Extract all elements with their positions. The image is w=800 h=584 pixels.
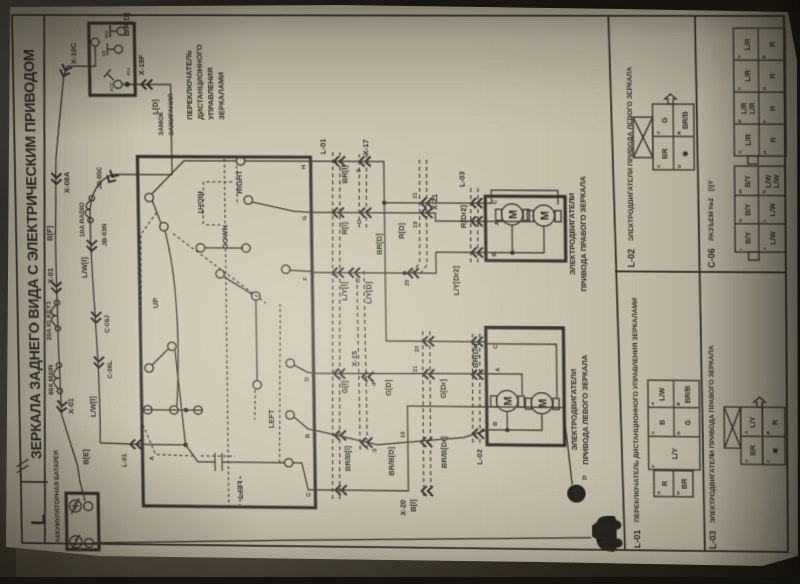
svg-text:L-01: L-01 — [318, 139, 327, 155]
svg-text:ПЕРЕКЛЮЧАТЕЛЬ ДИСТАНЦИОННОГО У: ПЕРЕКЛЮЧАТЕЛЬ ДИСТАНЦИОННОГО УПРАВЛЕНИЯ … — [632, 298, 641, 523]
svg-text:19: 19 — [413, 221, 419, 228]
svg-text:D: D — [677, 164, 682, 168]
svg-text:G: G — [661, 117, 669, 123]
svg-text:L/W: L/W — [764, 174, 772, 188]
svg-text:L/Y[Dr2]: L/Y[Dr2] — [451, 265, 461, 295]
svg-text:C-06: C-06 — [706, 248, 717, 268]
svg-text:C-06J: C-06J — [104, 315, 111, 333]
svg-text:L/W: L/W — [658, 387, 666, 401]
svg-text:B: B — [676, 401, 681, 405]
svg-text:ПЕРЕКЛЮЧАТЕЛЬ: ПЕРЕКЛЮЧАТЕЛЬ — [184, 50, 194, 120]
svg-text:BR: BR — [749, 444, 757, 455]
svg-text:D: D — [582, 476, 588, 480]
svg-text:F: F — [651, 464, 656, 467]
svg-text:C: C — [356, 279, 362, 283]
svg-text:B: B — [765, 430, 770, 434]
svg-text:JB-05C: JB-05C — [96, 166, 103, 189]
svg-text:АККУМУЛЯТОРНАЯ БАТАРЕЯ: АККУМУЛЯТОРНАЯ БАТАРЕЯ — [53, 450, 62, 543]
svg-text:BR/B[D]: BR/B[D] — [387, 446, 397, 476]
svg-text:B/Y: B/Y — [744, 175, 752, 187]
svg-text:X-01: X-01 — [66, 398, 75, 414]
svg-text:РАЗЪЕМ №2: РАЗЪЕМ №2 — [708, 198, 716, 241]
svg-text:ЭЛЕКТРОДВИГАТЕЛИ ПРИВОДА ПРАВ: ЭЛЕКТРОДВИГАТЕЛИ ПРИВОДА ПРАВОГО ЗЕРКАЛА — [708, 345, 717, 523]
svg-text:L/W: L/W — [773, 174, 781, 188]
svg-text:A: A — [737, 55, 742, 59]
svg-text:R: R — [769, 41, 777, 47]
svg-text:UP: UP — [151, 298, 160, 309]
svg-text:УПРАВЛЕНИЯ: УПРАВЛЕНИЯ — [206, 67, 216, 119]
svg-text:L: L — [762, 219, 767, 222]
svg-text:C: C — [650, 430, 655, 434]
svg-text:R: R — [769, 72, 777, 78]
svg-text:X-19C: X-19C — [69, 42, 79, 64]
svg-text:X-20: X-20 — [398, 500, 407, 516]
svg-text:L-03: L-03 — [457, 171, 466, 187]
svg-text:B[F]: B[F] — [45, 225, 54, 241]
svg-text:C: C — [737, 86, 742, 90]
svg-text:B: B — [658, 420, 666, 425]
svg-text:L/R: L/R — [740, 102, 748, 115]
svg-text:LEFT: LEFT — [267, 409, 276, 428]
svg-text:B/Y: B/Y — [744, 203, 752, 215]
svg-text:L-01: L-01 — [121, 453, 128, 467]
svg-text:L/W: L/W — [769, 231, 777, 245]
svg-text:JB-03N: JB-03N — [101, 223, 108, 246]
svg-text:L/R: L/R — [744, 69, 752, 82]
svg-text:10A RADIO: 10A RADIO — [79, 202, 87, 237]
svg-text:C: C — [306, 493, 312, 497]
svg-text:✱: ✱ — [682, 151, 690, 157]
svg-text:L/W: L/W — [769, 203, 777, 217]
svg-text:F: F — [303, 276, 309, 280]
svg-text:C: C — [744, 458, 749, 462]
svg-text:D: D — [762, 86, 767, 90]
svg-text:B[l]: B[l] — [409, 499, 418, 512]
svg-text:R[Dr2]: R[Dr2] — [459, 204, 469, 228]
svg-text:B: B — [676, 130, 681, 134]
svg-text:ЗАМОК: ЗАМОК — [158, 112, 165, 136]
svg-text:B/Y: B/Y — [744, 232, 752, 244]
svg-text:D: D — [676, 431, 681, 435]
svg-text:G: G — [656, 490, 661, 494]
svg-text:d: d — [371, 382, 377, 386]
svg-text:ЭЛЕКТРОДВИГАТЕЛИ: ЭЛЕКТРОДВИГАТЕЛИ — [567, 193, 577, 275]
svg-text:H: H — [762, 151, 767, 154]
svg-text:M: M — [539, 211, 551, 220]
svg-text:C: C — [766, 459, 771, 463]
svg-text:RIGHT: RIGHT — [235, 170, 245, 194]
svg-text:N: N — [762, 190, 767, 193]
svg-text:10: 10 — [401, 432, 407, 438]
svg-text:L: L — [28, 514, 49, 526]
svg-text:ST: ST — [101, 50, 106, 56]
svg-text:R: R — [772, 419, 780, 425]
svg-text:G[D]: G[D] — [384, 379, 393, 396]
svg-text:ЗЕРКАЛАМИ: ЗЕРКАЛАМИ — [216, 72, 226, 120]
svg-text:B: B — [305, 434, 311, 438]
svg-text:A: A — [650, 401, 655, 405]
svg-text:R[D]: R[D] — [397, 222, 406, 239]
svg-text:IG2: IG2 — [104, 30, 109, 38]
svg-text:ЗЕРКАЛА ЗАДНЕГО ВИДА С ЭЛЕКТРИ: ЗЕРКАЛА ЗАДНЕГО ВИДА С ЭЛЕКТРИЧЕСКИМ ПРИ… — [22, 49, 46, 459]
svg-text:L/W[l]: L/W[l] — [80, 257, 89, 279]
svg-text:G: G — [737, 150, 742, 154]
svg-text:X-15: X-15 — [350, 351, 359, 367]
svg-text:R: R — [769, 136, 777, 142]
svg-text:C: C — [656, 164, 661, 168]
svg-text:B: B — [372, 448, 378, 452]
svg-text:B[E]: B[E] — [81, 449, 90, 465]
svg-text:BR/B[Dr]: BR/B[Dr] — [439, 436, 449, 469]
svg-text:ACC: ACC — [109, 82, 114, 93]
svg-text:ПРИВОДА ПРАВОГО ЗЕРКАЛА: ПРИВОДА ПРАВОГО ЗЕРКАЛА — [578, 176, 588, 292]
svg-text:X-19F: X-19F — [137, 54, 146, 75]
svg-text:L-02: L-02 — [475, 449, 484, 465]
svg-text:D: D — [305, 377, 311, 381]
svg-text:L/Y: L/Y — [749, 416, 757, 428]
svg-text:F: F — [762, 120, 767, 123]
svg-text:L/Y[l]: L/Y[l] — [340, 281, 349, 301]
svg-text:L/R: L/R — [744, 38, 752, 51]
svg-text:80A MAIN: 80A MAIN — [48, 364, 56, 395]
svg-text:D: D — [357, 219, 363, 223]
svg-text:C: C — [493, 345, 499, 349]
svg-text:G: G — [684, 419, 692, 425]
svg-text:BR: BR — [661, 148, 669, 159]
svg-text:L/Y: L/Y — [671, 448, 679, 460]
svg-text:A: A — [656, 130, 661, 134]
svg-text:X-17: X-17 — [361, 139, 370, 155]
svg-text:X-01: X-01 — [46, 268, 55, 284]
svg-text:H: H — [676, 491, 681, 494]
svg-text:L-01: L-01 — [632, 530, 642, 549]
svg-text:10: 10 — [573, 488, 584, 500]
svg-text:C-06L: C-06L — [107, 360, 114, 378]
svg-text:L-03: L-03 — [708, 531, 718, 550]
svg-text:DOWN: DOWN — [220, 225, 230, 249]
svg-text:B: B — [761, 55, 766, 59]
svg-text:L/W[l]: L/W[l] — [88, 396, 97, 417]
svg-text:IG1: IG1 — [126, 67, 131, 75]
svg-text:L[D]: L[D] — [151, 99, 160, 115]
svg-text:G: G — [302, 215, 308, 220]
svg-text:✱: ✱ — [772, 448, 780, 454]
svg-text:ЭЛЕКТРОДВИГАТЕЛИ: ЭЛЕКТРОДВИГАТЕЛИ — [569, 369, 579, 451]
svg-text:L/R: L/R — [748, 102, 756, 115]
svg-text:M: M — [738, 189, 743, 193]
svg-text:A: A — [495, 367, 501, 372]
svg-text:BR/B[l]: BR/B[l] — [343, 445, 353, 471]
svg-text:L/Y[D]: L/Y[D] — [364, 281, 373, 304]
svg-text:BR: BR — [681, 478, 689, 489]
svg-text:LEFT: LEFT — [235, 481, 244, 500]
svg-text:J: J — [762, 247, 767, 250]
svg-text:[l]Y: [l]Y — [708, 180, 715, 192]
svg-text:RIGHT: RIGHT — [196, 191, 206, 215]
svg-text:M: M — [502, 396, 514, 405]
svg-text:M: M — [507, 210, 519, 219]
svg-text:C: C — [492, 200, 498, 204]
svg-text:BR[l]: BR[l] — [340, 165, 349, 184]
svg-text:R: R — [769, 105, 777, 111]
svg-text:G[Dr]: G[Dr] — [438, 379, 447, 399]
svg-text:BR/B: BR/B — [684, 386, 692, 404]
svg-text:20: 20 — [405, 280, 411, 287]
svg-text:M: M — [537, 399, 549, 408]
svg-text:X-21: X-21 — [430, 194, 439, 210]
svg-text:20A IG KEY1: 20A IG KEY1 — [45, 301, 53, 341]
svg-text:B: B — [493, 422, 499, 426]
svg-text:21: 21 — [413, 365, 419, 372]
svg-text:K: K — [738, 218, 743, 222]
svg-text:X-08A: X-08A — [62, 171, 71, 193]
svg-text:R[l]: R[l] — [340, 221, 349, 234]
svg-text:G[l]: G[l] — [340, 380, 349, 394]
svg-text:21: 21 — [413, 192, 419, 199]
svg-text:L/R: L/R — [745, 133, 753, 146]
svg-text:ПРИВОДА ЛЕВОГО ЗЕРКАЛА: ПРИВОДА ЛЕВОГО ЗЕРКАЛА — [580, 354, 590, 464]
svg-text:E: E — [737, 119, 742, 122]
svg-text:R: R — [661, 480, 669, 486]
svg-text:A: A — [150, 455, 156, 460]
svg-text:H: H — [301, 165, 307, 169]
svg-text:G: G — [600, 537, 609, 543]
svg-text:I: I — [738, 249, 743, 250]
svg-text:L-02: L-02 — [626, 249, 637, 268]
svg-text:ДИСТАНЦИОННОГО: ДИСТАНЦИОННОГО — [195, 44, 205, 120]
svg-text:A: A — [744, 430, 749, 434]
svg-text:BR/B: BR/B — [681, 111, 689, 129]
svg-text:20: 20 — [415, 346, 421, 353]
svg-text:BR[D]: BR[D] — [375, 233, 384, 255]
